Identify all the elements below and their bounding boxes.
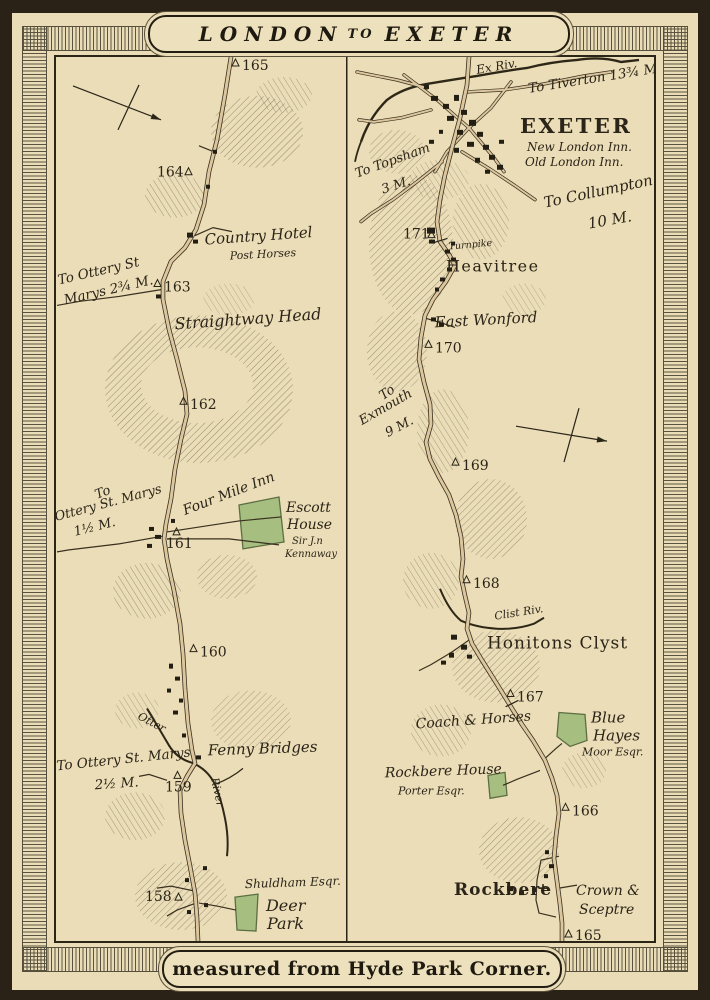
compass-rose [73,85,161,130]
label-exeter: EXETER [520,113,632,138]
map-page: 165 164 163 162 161 160 159 158 Country … [0,0,710,1000]
label-deer-1: Deer [265,896,307,915]
label-to-tiverton: To Tiverton 13¾ M. [527,60,654,97]
label-deer-2: Park [266,914,304,933]
title-exeter: EXETER [385,22,520,46]
footer-banner: measured from Hyde Park Corner. [162,950,562,988]
milestone-label: 162 [190,397,217,413]
milestone-label: 166 [572,803,599,819]
milestone-icon [463,576,470,583]
label-moor-esq: Moor Esqr. [581,745,643,758]
milestone-icon [185,168,192,175]
label-rockbere: Rockbere [454,880,552,900]
label-crown-2: Sceptre [579,902,634,918]
milestone-label: 158 [145,889,172,905]
milestone-166: 166 [562,803,599,819]
label-to-collumpton-1: To Collumpton [542,171,654,212]
label-porter-esq: Porter Esqr. [397,784,465,797]
label-to-ottery-c1: To Ottery St. Marys [56,744,191,774]
label-new-london-inn: New London Inn. [526,140,632,154]
label-fenny-bridges: Fenny Bridges [207,738,319,760]
milestone-label: 167 [517,690,544,706]
label-escott-1: Escott [285,500,331,516]
milestone-label: 160 [200,645,227,661]
map-panel-right: 171 170 169 168 167 166 165 Ex Riv. To T… [349,57,654,941]
milestone-label: 163 [164,279,191,295]
label-to-exmouth-3: 9 M. [383,413,416,440]
label-escott-3: Sir J.n [292,536,323,547]
milestone-165-b: 165 [565,928,602,941]
milestone-icon [190,645,197,652]
label-east-wonford: East Wonford [433,308,538,331]
label-escott-2: House [286,517,332,533]
footer-text: measured from Hyde Park Corner. [172,958,552,980]
milestone-label: 159 [165,779,192,795]
milestone-label: 164 [157,165,184,181]
border-ornament-right [663,26,688,972]
milestone-icon [154,279,161,286]
label-to-collumpton-2: 10 M. [587,207,633,232]
milestone-label: 170 [435,340,462,356]
milestone-160: 160 [190,645,227,661]
milestone-163: 163 [154,279,191,295]
label-crown-1: Crown & [576,883,640,899]
title-banner: LONDON TO EXETER [148,15,570,53]
milestone-label: 168 [473,576,500,592]
label-old-london-inn: Old London Inn. [525,155,623,169]
milestone-170: 170 [425,340,462,356]
label-to-ottery-c2: 2½ M. [93,774,139,793]
milestone-165: 165 [232,58,269,74]
label-ex-riv: Ex Riv. [474,57,518,77]
milestone-icon [565,930,572,937]
milestone-label: 165 [575,928,602,941]
label-country-hotel: Country Hotel [204,223,313,248]
milestone-icon [562,803,569,810]
milestone-label: 171 [403,227,430,243]
title-to: TO [348,27,375,42]
label-clist-riv: Clist Riv. [493,602,544,622]
milestone-icon [232,59,239,66]
label-escott-4: Kennaway [284,549,337,560]
milestone-168: 168 [463,576,500,592]
label-blue-1: Blue [590,709,625,727]
label-shuldham: Shuldham Esqr. [245,874,341,891]
map-frame: 165 164 163 162 161 160 159 158 Country … [54,55,656,943]
title-london: LONDON [199,22,344,46]
label-post-horses: Post Horses [228,246,296,263]
milestone-label: 161 [166,536,193,552]
milestone-icon [174,771,181,778]
label-honitons-clyst: Honitons Clyst [487,634,628,654]
milestone-label: 169 [462,458,489,474]
milestone-label: 165 [242,58,269,74]
label-heavitree: Heavitree [446,257,540,276]
label-blue-2: Hayes [592,726,640,744]
map-panel-left: 165 164 163 162 161 160 159 158 Country … [56,57,345,941]
label-rockbere-house: Rockbere House [384,761,502,781]
compass-rose [516,408,607,462]
border-ornament-left [22,26,47,972]
